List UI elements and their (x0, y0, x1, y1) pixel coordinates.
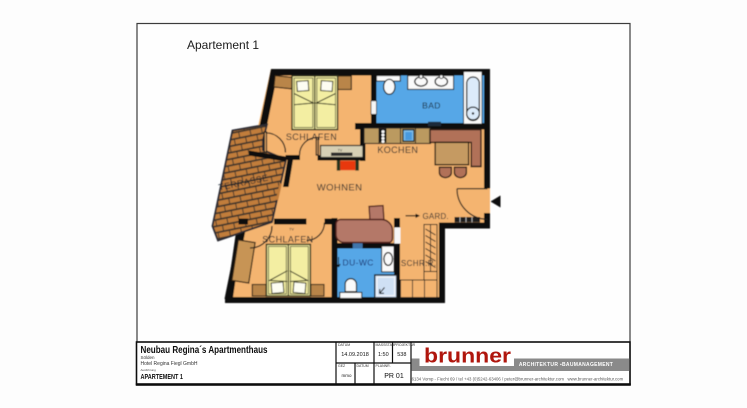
svg-text:Apartement 1: Apartement 1 (187, 38, 259, 52)
svg-text:PR 01: PR 01 (384, 373, 404, 380)
svg-text:ARCHITEKTUR ▪BAUMANAGEMENT: ARCHITEKTUR ▪BAUMANAGEMENT (519, 362, 613, 368)
svg-text:Sölden: Sölden (141, 355, 156, 360)
svg-text:6134 Vomp - Fiecht 69 / tel +4: 6134 Vomp - Fiecht 69 / tel +43 (0)5242-… (412, 377, 624, 382)
svg-text:BAD: BAD (422, 100, 441, 110)
svg-text:14.09.2018: 14.09.2018 (341, 352, 369, 358)
svg-text:WOHNEN: WOHNEN (317, 182, 363, 193)
svg-text:DATUM: DATUM (338, 343, 350, 347)
svg-text:538: 538 (397, 352, 406, 358)
svg-text:APARTEMENT 1: APARTEMENT 1 (141, 372, 184, 381)
svg-text:SCHLAFEN: SCHLAFEN (262, 234, 313, 244)
svg-text:KOCHEN: KOCHEN (377, 145, 418, 155)
svg-text:MASSSTAB: MASSSTAB (376, 343, 395, 347)
svg-text:1:50: 1:50 (378, 352, 389, 358)
svg-text:brunner: brunner (424, 345, 511, 368)
svg-text:mmo: mmo (342, 373, 352, 378)
svg-text:GARD.: GARD. (423, 212, 449, 221)
svg-text:SCHLAFEN: SCHLAFEN (286, 132, 337, 142)
svg-text:DU-WC: DU-WC (343, 257, 374, 267)
svg-text:Hotel Regina Fiegl GmbH: Hotel Regina Fiegl GmbH (141, 361, 198, 367)
svg-text:GEZ: GEZ (338, 364, 346, 368)
svg-text:Neubau Regina´s Apartmenthaus: Neubau Regina´s Apartmenthaus (141, 345, 268, 356)
svg-text:TV: TV (338, 149, 343, 153)
svg-text:TV: TV (289, 228, 294, 232)
svg-text:PROJEKTNR: PROJEKTNR (394, 343, 416, 347)
svg-text:SCHR.R.: SCHR.R. (401, 259, 437, 268)
svg-text:PLANNR.: PLANNR. (376, 364, 391, 368)
svg-text:DATUM: DATUM (357, 364, 369, 368)
